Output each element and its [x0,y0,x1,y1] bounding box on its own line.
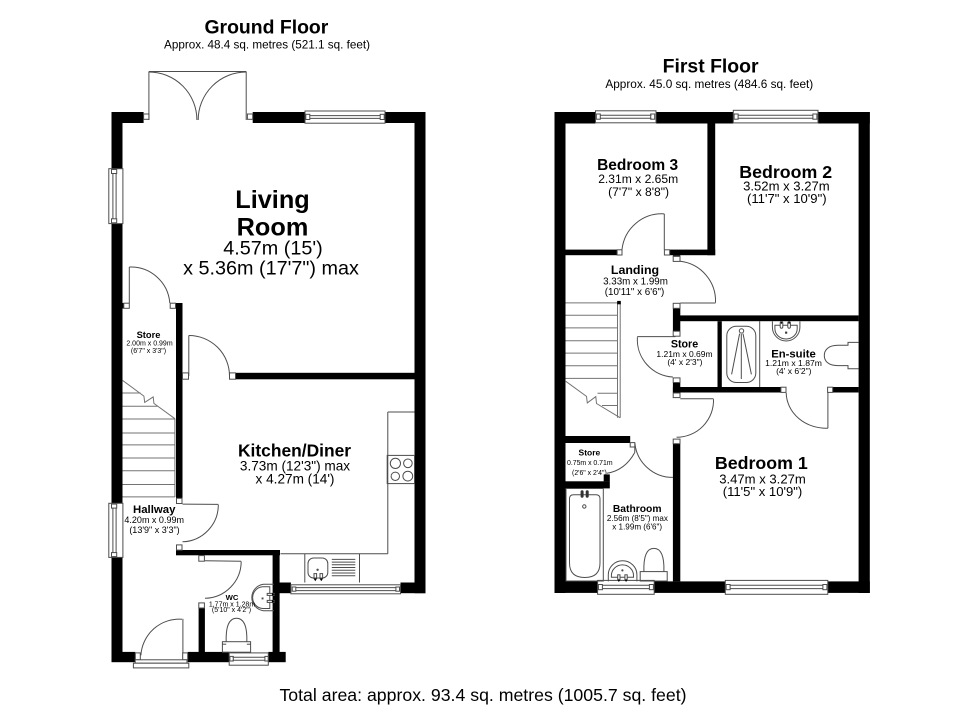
svg-text:(11'7" x 10'9"): (11'7" x 10'9") [747,191,827,206]
svg-text:Ground Floor: Ground Floor [204,17,328,39]
svg-text:Landing: Landing [611,263,659,277]
svg-text:(4' x 2'3"): (4' x 2'3") [667,357,702,367]
svg-text:(7'7" x 8'8"): (7'7" x 8'8") [608,185,669,199]
svg-text:First Floor: First Floor [663,56,759,78]
svg-text:Approx. 48.4 sq. metres (521.1: Approx. 48.4 sq. metres (521.1 sq. feet) [164,39,370,52]
svg-text:Living: Living [235,186,309,214]
svg-text:0.75m x 0.71m: 0.75m x 0.71m [567,460,613,467]
svg-text:4.20m x 0.99m: 4.20m x 0.99m [124,515,184,525]
svg-text:2.00m x 0.99m: 2.00m x 0.99m [126,340,172,347]
svg-text:(2'6" x 2'4"): (2'6" x 2'4") [572,470,607,477]
svg-text:(13'9" x 3'3"): (13'9" x 3'3") [129,525,179,535]
svg-text:(6'7" x 3'3"): (6'7" x 3'3") [131,348,166,355]
svg-text:Store: Store [579,448,601,458]
svg-text:Store: Store [137,330,161,340]
svg-text:(10'11" x 6'6"): (10'11" x 6'6") [605,287,665,298]
svg-text:3.33m x 1.99m: 3.33m x 1.99m [603,276,668,287]
svg-text:4.57m (15'): 4.57m (15') [223,238,322,260]
svg-text:(11'5" x 10'9"): (11'5" x 10'9") [723,484,803,499]
svg-text:Bedroom 1: Bedroom 1 [715,453,808,473]
svg-text:x 1.99m (6'6"): x 1.99m (6'6") [612,523,662,532]
svg-text:Approx. 45.0 sq. metres (484.6: Approx. 45.0 sq. metres (484.6 sq. feet) [605,77,813,91]
svg-text:x 4.27m (14'): x 4.27m (14') [256,471,335,486]
svg-text:x 5.36m (17'7") max: x 5.36m (17'7") max [183,257,359,279]
svg-text:2.31m x 2.65m: 2.31m x 2.65m [598,172,678,186]
svg-text:(5'10" x 4'2"): (5'10" x 4'2") [212,607,251,614]
svg-text:(4' x 6'2"): (4' x 6'2") [776,366,812,376]
svg-text:Total area: approx. 93.4 sq. m: Total area: approx. 93.4 sq. metres (100… [279,685,686,705]
